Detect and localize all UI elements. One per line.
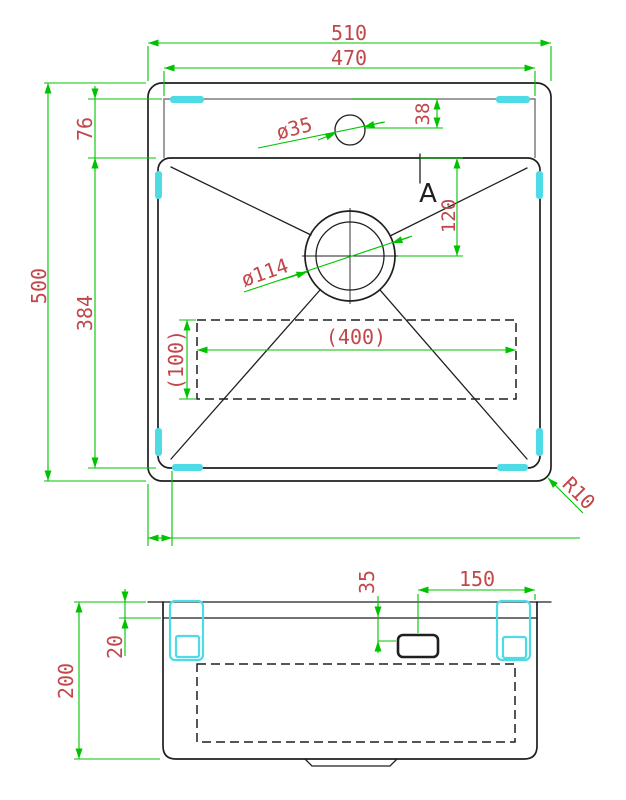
base-pad-side-outline <box>197 664 515 742</box>
weld-mark-top-right <box>496 96 530 103</box>
side-view-dimensions <box>74 589 535 759</box>
ext-lines-150 <box>418 594 535 633</box>
drawing-svg: 510 470 500 76 384 38 120 ø35 ø114 (400)… <box>0 0 626 800</box>
weld-mark-right-upper <box>536 171 543 199</box>
faucet-offset-label: 38 <box>412 103 434 126</box>
weld-mark-bottom-left <box>172 464 203 471</box>
faucet-hole <box>335 115 365 145</box>
ext-lines-200 <box>74 602 160 759</box>
rim-height-label: 20 <box>103 635 127 659</box>
outer-depth-label: 500 <box>27 268 51 304</box>
ext-lines-rim-lip <box>148 471 580 546</box>
drain-offset-label: 120 <box>438 199 460 233</box>
mounting-clip-right-slot <box>503 637 526 658</box>
basin-opening <box>158 158 540 468</box>
weld-mark-bottom-right <box>497 464 528 471</box>
corner-radius-label: R10 <box>558 472 601 515</box>
bracket-offset-label: 35 <box>355 570 379 594</box>
side-view-labels: 200 20 35 150 <box>54 567 495 699</box>
weld-mark-right-lower <box>536 428 543 456</box>
body-outline <box>163 602 537 759</box>
mounting-clip-left-slot <box>176 636 199 657</box>
top-view <box>148 83 551 481</box>
base-pad-depth-label: (100) <box>164 330 188 390</box>
section-marker-label: A <box>419 179 437 209</box>
weld-mark-left-lower <box>155 428 162 456</box>
outer-width-label: 510 <box>331 21 367 45</box>
rim-inner-width-label: 470 <box>331 46 367 70</box>
leader-drain-arrow-right <box>392 237 410 243</box>
drain-boss <box>305 759 397 766</box>
sink-technical-drawing: 510 470 500 76 384 38 120 ø35 ø114 (400)… <box>0 0 626 800</box>
base-pad-width-label: (400) <box>326 325 386 349</box>
faucet-diameter-label: ø35 <box>274 112 315 145</box>
overall-height-label: 200 <box>54 663 78 699</box>
bracket-fitting <box>398 635 438 657</box>
drain-diameter-label: ø114 <box>238 253 291 291</box>
ext-lines-384 <box>88 158 156 468</box>
basin-depth-label: 384 <box>73 295 97 331</box>
weld-mark-top-left <box>170 96 204 103</box>
sink-outer-edge <box>148 83 551 481</box>
dim-line-35 <box>378 596 396 653</box>
rim-inner-edge <box>164 99 535 158</box>
leader-faucet-arrow-right <box>364 122 383 127</box>
drain-centerlines <box>302 208 398 304</box>
bracket-to-edge-label: 150 <box>459 567 495 591</box>
rim-to-basin-label: 76 <box>73 117 97 141</box>
side-view <box>148 601 551 766</box>
top-view-labels: 510 470 500 76 384 38 120 ø35 ø114 (400)… <box>27 21 600 514</box>
weld-mark-left-upper <box>155 171 162 199</box>
